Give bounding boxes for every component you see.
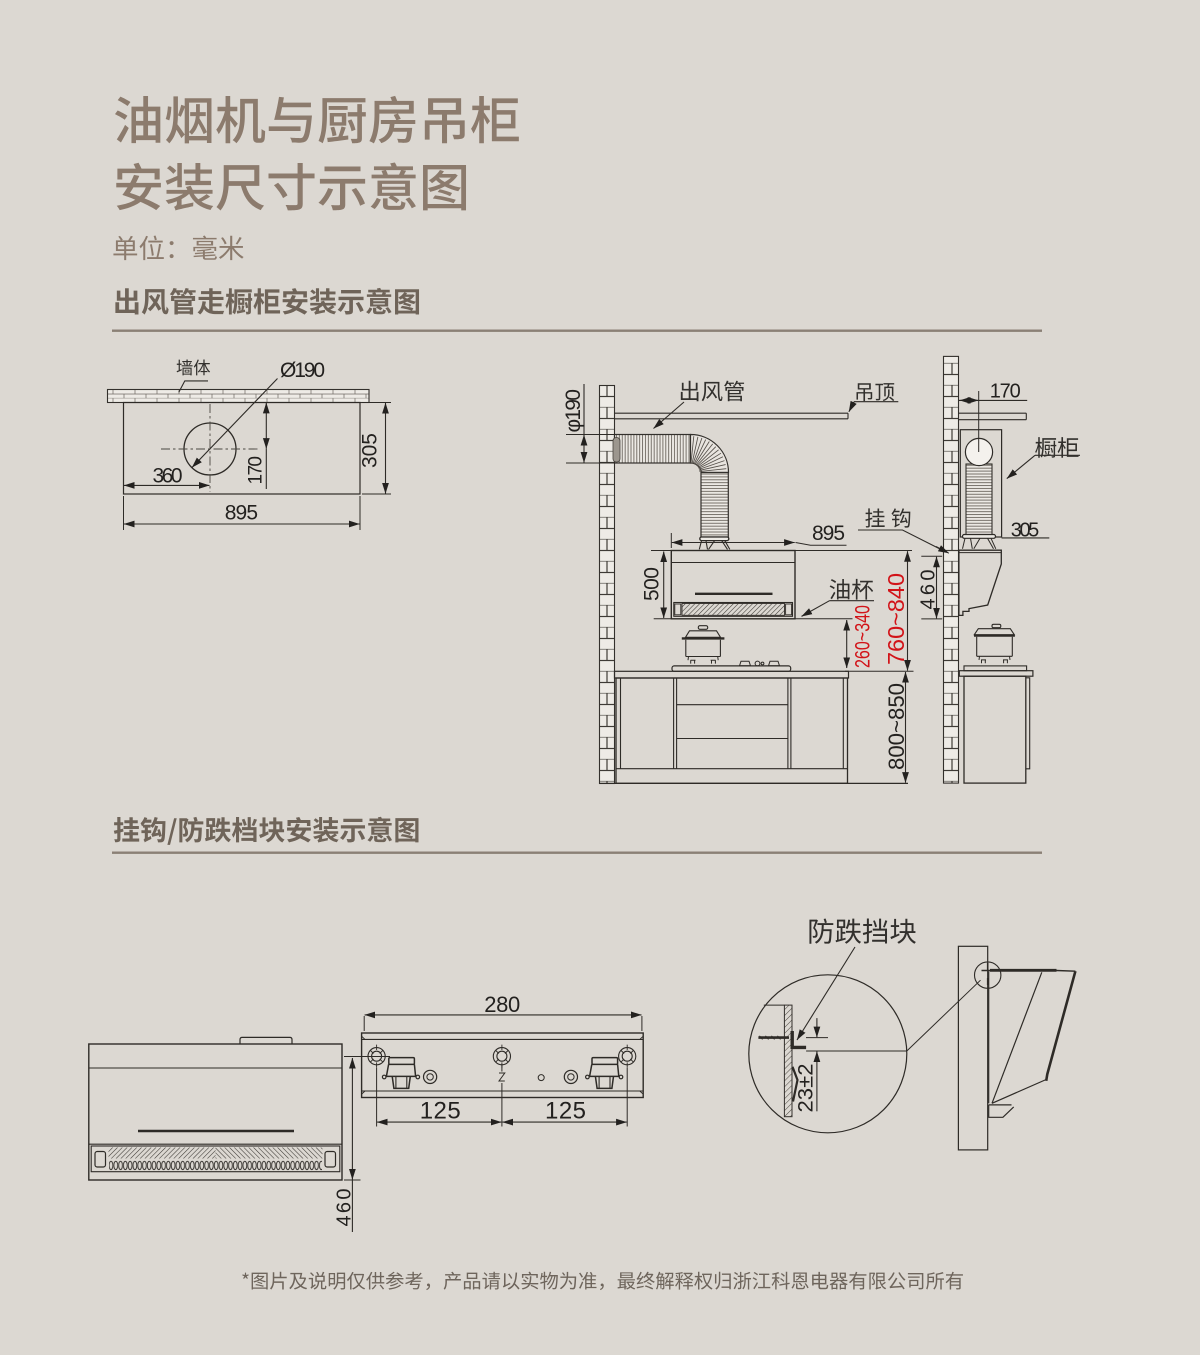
svg-text:760~840: 760~840	[883, 573, 909, 665]
svg-text:460: 460	[918, 570, 940, 610]
svg-text:170: 170	[990, 381, 1021, 403]
svg-text:500: 500	[641, 567, 664, 601]
svg-text:280: 280	[484, 992, 520, 1017]
svg-text:895: 895	[812, 522, 845, 545]
svg-text:360: 360	[153, 465, 183, 488]
svg-text:Ø190: Ø190	[280, 359, 325, 382]
svg-text:895: 895	[225, 502, 258, 525]
svg-text:800~850: 800~850	[884, 683, 909, 770]
svg-text:φ190: φ190	[562, 389, 585, 433]
svg-text:23±2: 23±2	[795, 1064, 818, 1113]
svg-text:305: 305	[1011, 520, 1040, 542]
svg-text:170: 170	[246, 456, 267, 485]
svg-text:305: 305	[359, 433, 382, 468]
svg-text:125: 125	[420, 1098, 461, 1125]
svg-text:125: 125	[545, 1098, 586, 1125]
svg-text:460: 460	[334, 1189, 356, 1227]
svg-text:260~340: 260~340	[852, 605, 875, 668]
